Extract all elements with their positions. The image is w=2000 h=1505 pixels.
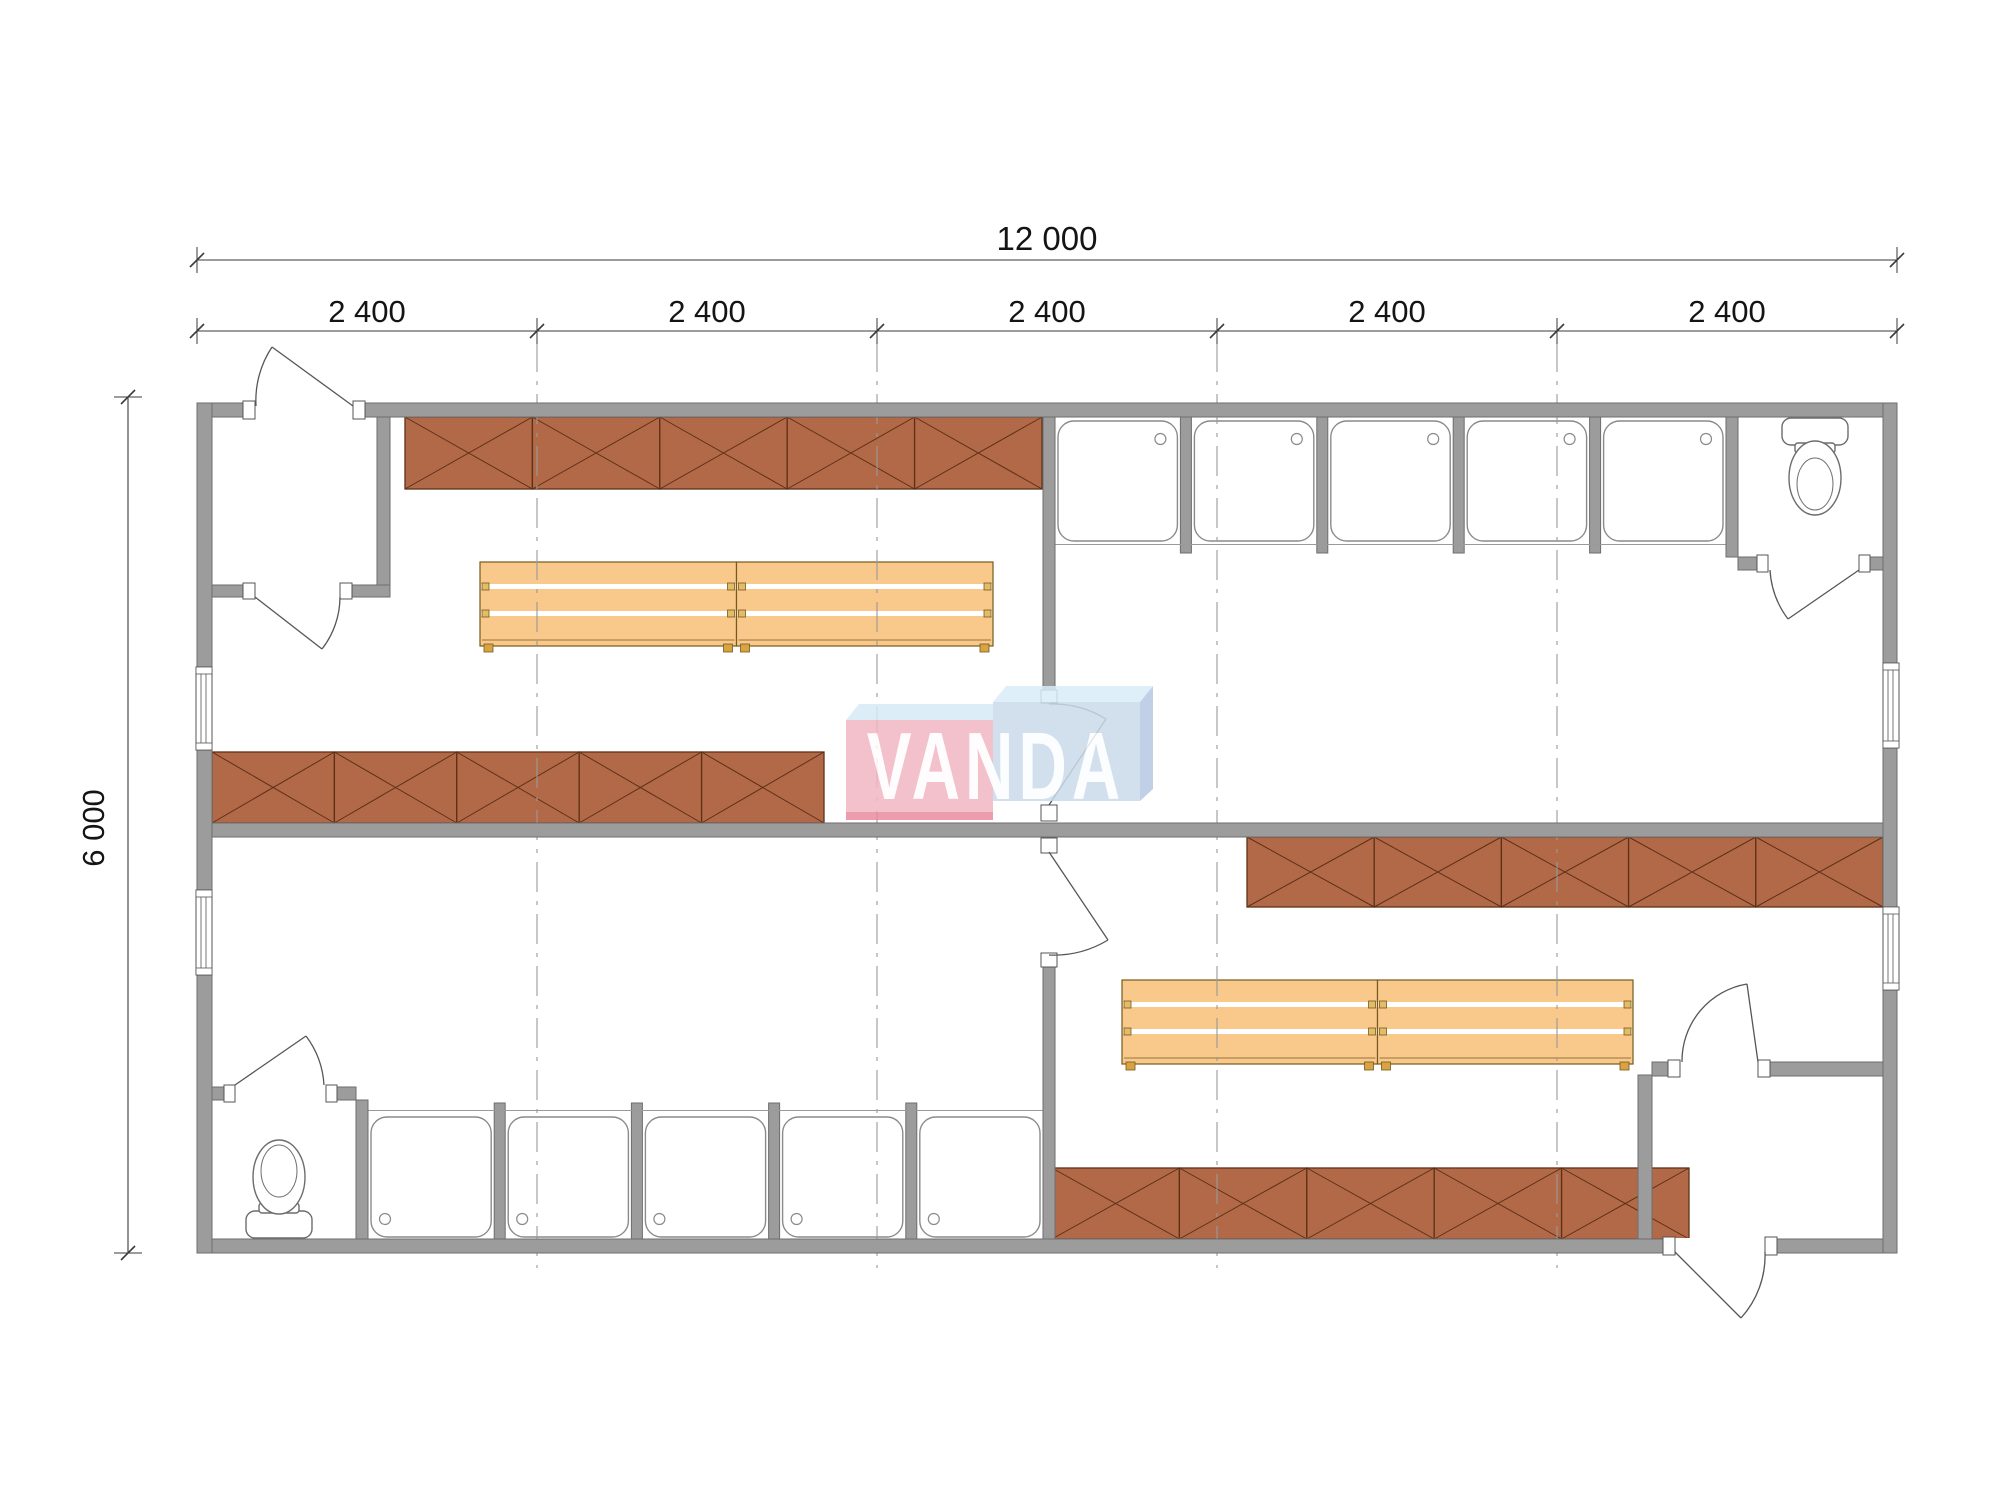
window-sill: [196, 890, 212, 897]
door-jamb: [1859, 555, 1870, 572]
bench-foot: [1126, 1062, 1135, 1070]
window: [1883, 663, 1899, 748]
shower-drain-icon: [1701, 434, 1712, 445]
bench-tab: [482, 583, 489, 590]
door-jamb: [224, 1085, 235, 1102]
wall-wc-topright-stub: [1870, 557, 1883, 570]
wall-vestibule-bottomright-stub: [1652, 1062, 1668, 1076]
bench-tab: [984, 583, 991, 590]
bench-tab: [728, 610, 735, 617]
bench-foot: [484, 644, 493, 652]
door-swing-entrance-topleft: [256, 347, 272, 406]
window: [196, 890, 212, 975]
shower-drain-icon: [1155, 434, 1166, 445]
shower-drain-icon: [1428, 434, 1439, 445]
window-sill: [196, 743, 212, 750]
dimension-label-total-width: 12 000: [997, 220, 1098, 257]
shower-partition-wall: [906, 1103, 917, 1239]
window-sill: [1883, 983, 1899, 990]
logo-blue-top-face: [993, 686, 1153, 702]
door-leaf-entrance-topleft: [272, 347, 353, 406]
toilet-bottom-left: [246, 1140, 312, 1248]
bench-tab: [739, 583, 746, 590]
door-leaf-entrance-bottomright: [1675, 1252, 1741, 1318]
bench-foot: [1365, 1062, 1374, 1070]
bench-body: [480, 562, 737, 646]
bench-body: [737, 562, 994, 646]
wall-divider-bottom: [1043, 966, 1055, 1239]
bench-body: [1378, 980, 1634, 1064]
shower-partition-wall: [631, 1103, 642, 1239]
wall-wc-bottomleft-stub: [337, 1087, 356, 1100]
wall-exterior-right: [1883, 403, 1897, 1253]
door-jamb: [1758, 1060, 1770, 1077]
bench-tab: [1380, 1028, 1387, 1035]
wall-vestibule-bottomright: [1638, 1075, 1652, 1239]
wall-vestibule-topleft-stub: [352, 585, 390, 597]
shower-partition-wall: [494, 1103, 505, 1239]
bench-tab: [1124, 1001, 1131, 1008]
bench-slat-gap: [1379, 1029, 1633, 1034]
dimension-label-module-4: 2 400: [1348, 294, 1426, 329]
bench-tab: [984, 610, 991, 617]
wall-wc-bottomleft: [356, 1100, 368, 1239]
door-jamb: [353, 401, 365, 419]
vanda-watermark: VANDA: [846, 686, 1153, 820]
wall-divider-top: [1043, 417, 1055, 690]
toilet-tank: [246, 1211, 312, 1238]
bench-slat-gap: [481, 611, 736, 616]
window-sill: [1883, 907, 1899, 914]
toilet-top-right: [1782, 407, 1848, 515]
bench-foot: [980, 644, 989, 652]
bench-slat-gap: [738, 584, 993, 589]
toilet-bowl: [1789, 441, 1841, 515]
door-jamb: [326, 1085, 337, 1102]
bench-slat-gap: [1123, 1029, 1377, 1034]
shower-drain-icon: [654, 1214, 665, 1225]
door-leaf-vestibule-topleft: [255, 597, 322, 649]
wall-vestibule-topleft-stub: [212, 585, 243, 597]
bench-slat-gap: [481, 584, 736, 589]
wall-wc-topright-stub: [1738, 557, 1757, 570]
bench-tab: [482, 610, 489, 617]
wall-middle-horizontal: [212, 823, 1883, 837]
bench-slat-gap: [1123, 1002, 1377, 1007]
shower-partition-wall: [1453, 417, 1464, 553]
door-jamb: [1668, 1060, 1680, 1077]
wall-wc-topright: [1726, 417, 1738, 557]
shower-partition-wall: [769, 1103, 780, 1239]
floor-plan-page: 12 000 2 400 2 400 2 400 2 400 2 400 6 0…: [0, 0, 2000, 1505]
bench-foot: [1382, 1062, 1391, 1070]
door-jamb: [1765, 1237, 1777, 1255]
bench-tab: [1380, 1001, 1387, 1008]
door-jamb: [340, 583, 352, 599]
dimension-label-module-5: 2 400: [1688, 294, 1766, 329]
shower-partition-wall: [1180, 417, 1191, 553]
bench-tab: [739, 610, 746, 617]
door-opening-top: [255, 401, 353, 418]
dimension-label-module-3: 2 400: [1008, 294, 1086, 329]
window-sill: [196, 667, 212, 674]
wall-vestibule-bottomright-stub: [1770, 1062, 1883, 1076]
door-jamb: [1663, 1237, 1675, 1255]
door-swing-vestibule-topleft: [322, 597, 340, 649]
bench-tab: [1124, 1028, 1131, 1035]
shower-drain-icon: [928, 1214, 939, 1225]
dimension-label-module-2: 2 400: [668, 294, 746, 329]
shower-partition-wall: [1317, 417, 1328, 553]
door-swing-entrance-bottomright: [1741, 1252, 1765, 1318]
shower-drain-icon: [791, 1214, 802, 1225]
door-jamb: [243, 401, 255, 419]
dimension-label-height: 6 000: [76, 789, 111, 867]
logo-wordmark: VANDA: [867, 712, 1125, 820]
bench-slat-gap: [738, 611, 993, 616]
shower-drain-icon: [380, 1214, 391, 1225]
window: [1883, 907, 1899, 990]
window: [196, 667, 212, 750]
floor-plan-drawing: 12 000 2 400 2 400 2 400 2 400 2 400 6 0…: [0, 0, 2000, 1505]
shower-drain-icon: [1291, 434, 1302, 445]
door-swing-vestibule-bottomright: [1682, 984, 1747, 1062]
bench-foot: [724, 644, 733, 652]
bench-body: [1122, 980, 1378, 1064]
bench-slat-gap: [1379, 1002, 1633, 1007]
window-sill: [1883, 741, 1899, 748]
window-sill: [1883, 663, 1899, 670]
bench-foot: [1620, 1062, 1629, 1070]
door-leaf-wc-bottomleft: [235, 1036, 306, 1085]
door-leaf-divider-bottom: [1049, 852, 1108, 940]
wall-wc-bottomleft-stub: [212, 1087, 224, 1100]
wall-exterior-top: [197, 403, 1897, 417]
door-swing-wc-bottomleft: [306, 1036, 324, 1085]
shower-partition-wall: [1590, 417, 1601, 553]
door-leaf-vestibule-bottomright: [1747, 984, 1758, 1062]
wall-exterior-bottom: [197, 1239, 1897, 1253]
bench-tab: [1369, 1001, 1376, 1008]
door-swing-wc-topright: [1770, 570, 1788, 619]
wall-vestibule-topleft: [377, 417, 390, 597]
bench-tab: [1624, 1001, 1631, 1008]
door-swing-divider-bottom: [1049, 940, 1108, 955]
window-sill: [196, 968, 212, 975]
door-leaf-wc-topright: [1788, 570, 1859, 619]
bench-tab: [1624, 1028, 1631, 1035]
door-jamb: [1041, 838, 1057, 853]
toilet-bowl: [253, 1140, 305, 1214]
bench-tab: [1369, 1028, 1376, 1035]
bench-tab: [728, 583, 735, 590]
logo-blue-side-face: [1140, 686, 1153, 801]
shower-drain-icon: [1564, 434, 1575, 445]
wall-exterior-left: [197, 403, 212, 1253]
door-jamb: [243, 583, 255, 599]
door-jamb: [1757, 555, 1768, 572]
dimension-label-module-1: 2 400: [328, 294, 406, 329]
door-opening-bottom: [1675, 1238, 1765, 1254]
bench-foot: [741, 644, 750, 652]
shower-drain-icon: [517, 1214, 528, 1225]
